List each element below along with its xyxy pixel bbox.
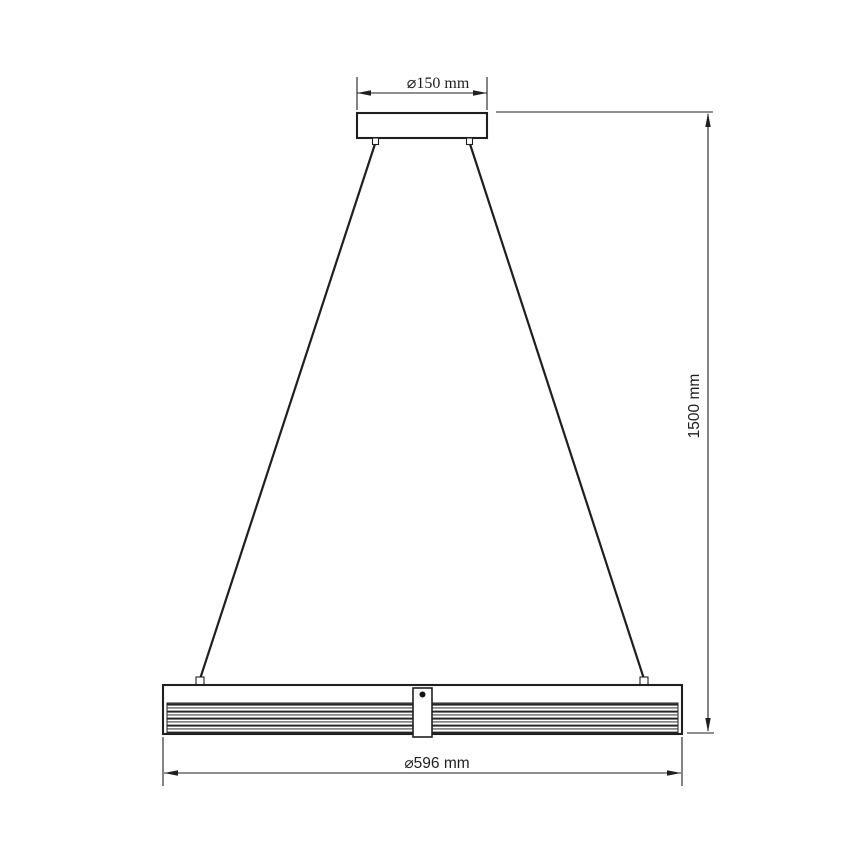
dim-596-arrow-left [164,770,178,775]
canopy-wire-nub-left [373,138,379,145]
drawing-svg: ⌀150 mm 1500 mm ⌀596 mm [0,0,868,868]
dim-1500-arrow-top [705,113,710,127]
dim-596-label: ⌀596 mm [404,755,469,772]
dim-596-arrow-right [667,770,681,775]
connector-screw-dot [420,692,426,698]
dim-1500-arrow-bottom [705,718,710,732]
dim-150-arrow-left [357,90,371,95]
canopy-wire-nub-right [467,138,473,145]
pendant-light-technical-drawing: ⌀150 mm 1500 mm ⌀596 mm [0,0,868,868]
ceiling-canopy [357,113,487,138]
suspension-wire-right [470,144,644,679]
dim-1500-label: 1500 mm [686,374,703,439]
dim-150-arrow-right [473,90,487,95]
suspension-wire-left [200,144,375,679]
dim-150-label: ⌀150 mm [407,75,470,92]
